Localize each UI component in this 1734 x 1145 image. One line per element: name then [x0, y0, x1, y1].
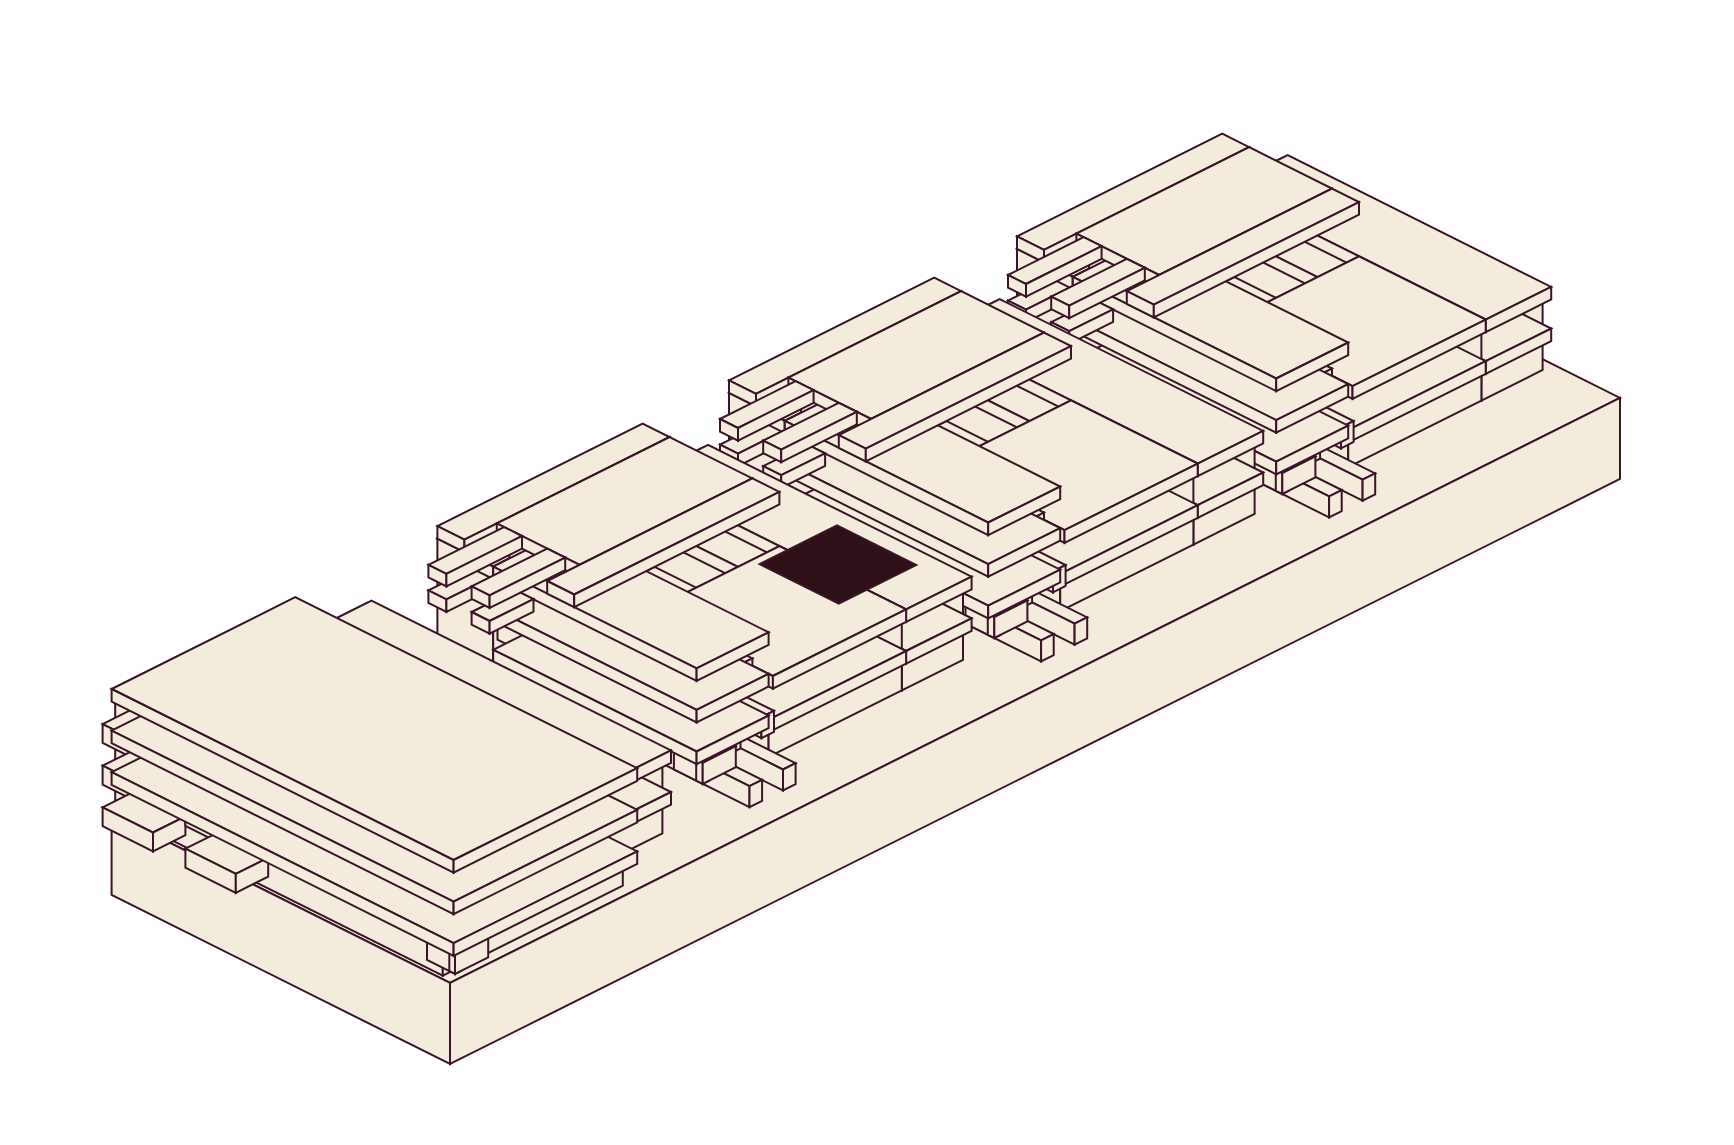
scene-svg: Isometric architectural illustration: fo…	[0, 0, 1734, 1145]
scene-geometry	[103, 134, 1620, 1064]
isometric-scene: Isometric architectural illustration: fo…	[0, 0, 1734, 1145]
